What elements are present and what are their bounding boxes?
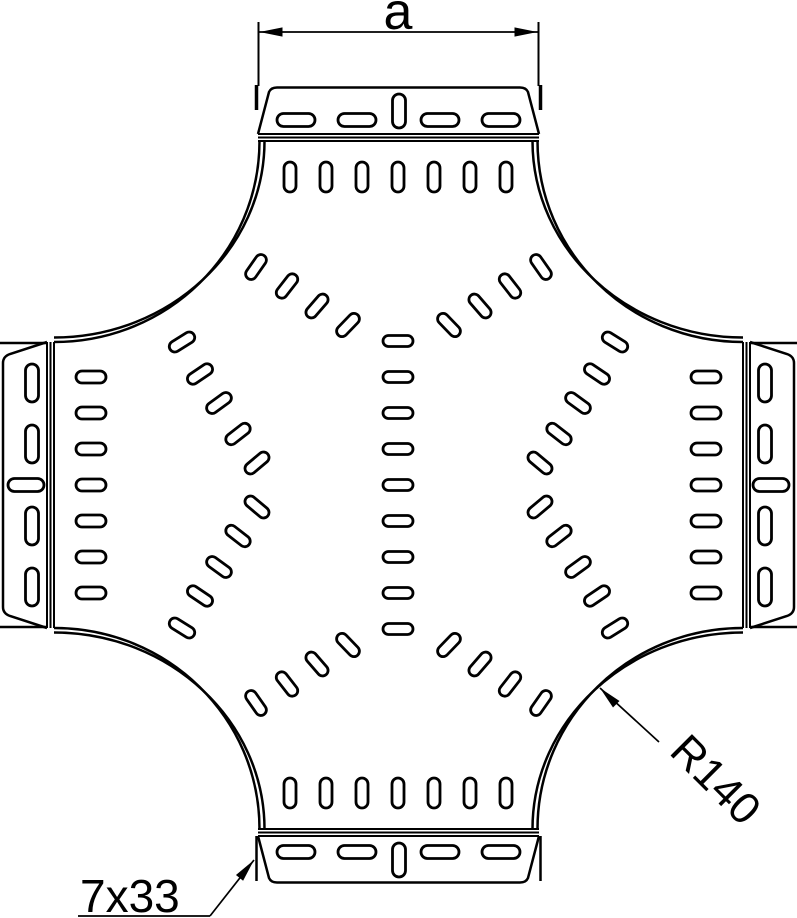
slot xyxy=(582,362,611,387)
slot xyxy=(435,631,462,659)
dim-a-arrow-right-head xyxy=(515,27,538,36)
slot xyxy=(691,587,721,599)
right-arm-slot-column xyxy=(691,371,721,599)
slot xyxy=(334,631,361,659)
slot xyxy=(464,162,476,192)
slot xyxy=(243,450,272,476)
slot-size-label: 7x33 xyxy=(80,870,180,918)
slot xyxy=(26,364,39,402)
slot xyxy=(167,616,197,640)
slot xyxy=(759,568,772,606)
slot xyxy=(393,843,406,877)
slot xyxy=(435,311,462,339)
slot xyxy=(334,311,361,339)
right-flange-center-slot xyxy=(753,479,789,492)
slot xyxy=(383,552,413,563)
dim-a-arrow-left-head xyxy=(260,27,283,36)
top-arm-slot-row xyxy=(284,162,512,192)
slot xyxy=(304,292,331,320)
slot xyxy=(421,114,459,127)
bottom-arm-slot-row xyxy=(284,778,512,808)
slot xyxy=(338,846,376,859)
left-arm-slot-column xyxy=(76,371,106,599)
slot xyxy=(600,616,630,640)
drawing-canvas: aR1407x33 xyxy=(0,0,797,918)
slot xyxy=(8,479,44,492)
slot xyxy=(76,479,106,491)
slot xyxy=(284,162,296,192)
slot xyxy=(497,670,523,699)
slot xyxy=(356,778,368,808)
slot xyxy=(224,421,253,447)
top-flange-center-slot xyxy=(393,94,406,128)
slot xyxy=(243,494,272,520)
slot xyxy=(277,846,315,859)
slot xyxy=(224,523,253,549)
slot xyxy=(392,162,404,192)
slot xyxy=(691,443,721,455)
slot xyxy=(482,846,520,859)
slot xyxy=(383,588,413,599)
slot xyxy=(428,778,440,808)
slot xyxy=(691,371,721,383)
slot xyxy=(467,650,494,678)
slot xyxy=(383,624,413,635)
slot xyxy=(582,584,611,609)
slot xyxy=(482,114,520,127)
slot xyxy=(76,407,106,419)
slot xyxy=(383,444,413,455)
center-slot-column xyxy=(383,336,413,635)
slot xyxy=(167,330,197,354)
slot xyxy=(759,364,772,402)
slot xyxy=(383,516,413,527)
slot xyxy=(526,450,555,476)
dimension-a-label: a xyxy=(384,0,413,41)
slot xyxy=(76,443,106,455)
slot xyxy=(464,778,476,808)
left-flange-center-slot xyxy=(8,479,44,492)
slot xyxy=(76,587,106,599)
slot xyxy=(691,479,721,491)
slot xyxy=(497,272,523,301)
cable-tray-cross-drawing: aR1407x33 xyxy=(0,0,797,918)
slot xyxy=(284,778,296,808)
slot xyxy=(76,551,106,563)
slot xyxy=(528,252,553,281)
slot xyxy=(356,162,368,192)
slot xyxy=(320,778,332,808)
slot xyxy=(383,336,413,347)
slot xyxy=(759,425,772,463)
slot xyxy=(204,390,233,415)
slot xyxy=(338,114,376,127)
slot xyxy=(563,554,592,579)
slot xyxy=(320,162,332,192)
slot xyxy=(500,778,512,808)
slot xyxy=(528,688,553,717)
slot xyxy=(277,114,315,127)
slot xyxy=(545,421,574,447)
slot xyxy=(467,292,494,320)
slot xyxy=(26,568,39,606)
slot xyxy=(753,479,789,492)
slot xyxy=(383,408,413,419)
bottom-flange-center-slot xyxy=(393,843,406,877)
slot xyxy=(76,371,106,383)
slot xyxy=(243,688,268,717)
slot xyxy=(393,94,406,128)
slot xyxy=(274,670,300,699)
slot xyxy=(383,372,413,383)
slot xyxy=(428,162,440,192)
slot xyxy=(421,846,459,859)
slot xyxy=(26,507,39,545)
slot xyxy=(759,507,772,545)
slot xyxy=(526,494,555,520)
slot xyxy=(600,330,630,354)
slot xyxy=(691,407,721,419)
radius-arrow-head xyxy=(600,688,620,708)
slot xyxy=(204,554,233,579)
slot xyxy=(545,523,574,549)
radius-label: R140 xyxy=(661,725,770,834)
slot xyxy=(691,515,721,527)
slot xyxy=(500,162,512,192)
slot xyxy=(304,650,331,678)
slot xyxy=(243,252,268,281)
slot xyxy=(76,515,106,527)
slot xyxy=(274,272,300,301)
slot xyxy=(691,551,721,563)
slot xyxy=(392,778,404,808)
slot xyxy=(185,584,214,609)
slot xyxy=(26,425,39,463)
slot xyxy=(185,362,214,387)
slot xyxy=(383,480,413,491)
slot-size-arrow-head xyxy=(236,860,254,881)
slot xyxy=(563,390,592,415)
